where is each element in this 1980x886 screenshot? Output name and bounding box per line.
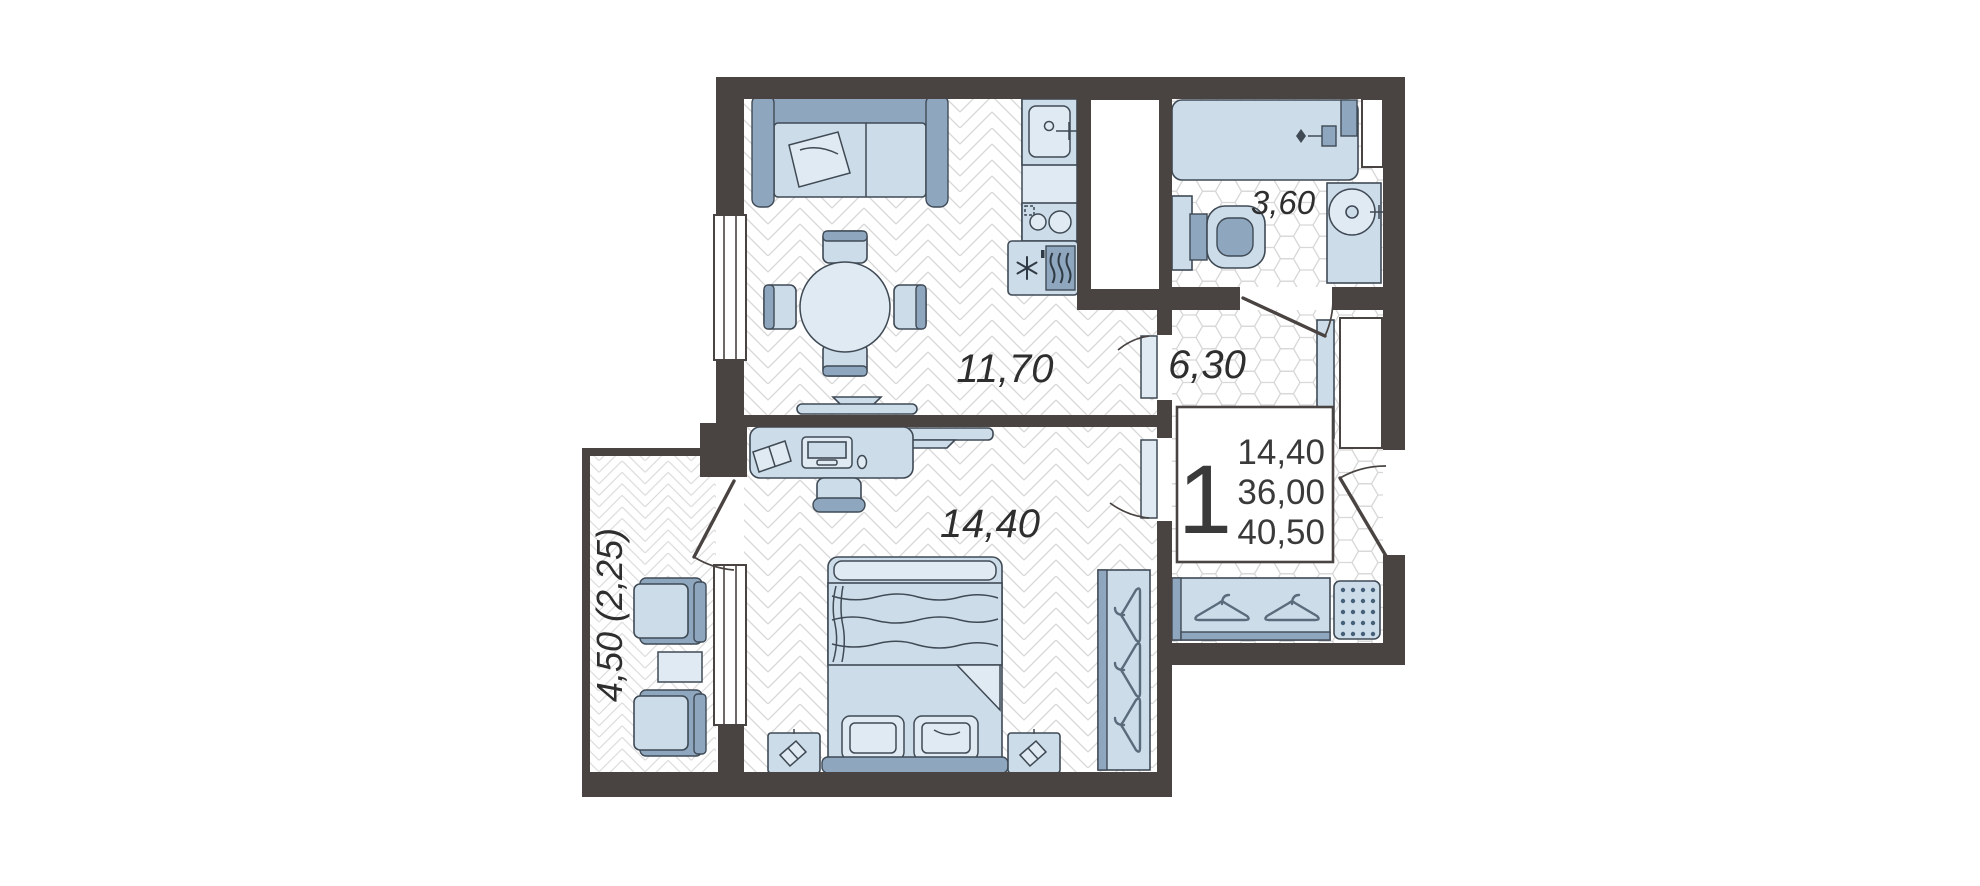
headboard	[822, 757, 1008, 773]
dining-chair-west	[764, 285, 796, 329]
label-bathroom: 3,60	[1251, 184, 1316, 221]
label-balcony: 4,50 (2,25)	[589, 528, 630, 702]
balcony-wall-top	[582, 448, 716, 456]
pillow-right	[914, 716, 978, 760]
bath-ledge	[1172, 196, 1192, 270]
bed-foot-board	[834, 561, 996, 580]
dining-table	[800, 262, 890, 352]
doormat	[1334, 581, 1380, 639]
mouse	[858, 456, 867, 469]
balcony-chair-top	[634, 578, 706, 644]
floor-plan: 11,70 6,30 3,60 14,40 4,50 (2,25) 1 14,4…	[0, 0, 1980, 886]
laptop	[802, 437, 852, 468]
rooms-count: 1	[1178, 445, 1232, 554]
dining-chair-north	[823, 231, 867, 263]
desk	[750, 427, 913, 478]
hall-wardrobe	[1172, 578, 1330, 640]
desk-chair	[813, 478, 865, 512]
window-bedroom	[714, 565, 746, 725]
floor-plan-page: 11,70 6,30 3,60 14,40 4,50 (2,25) 1 14,4…	[0, 0, 1980, 886]
label-kitchen-living: 11,70	[956, 347, 1053, 391]
total-area-value: 40,50	[1237, 513, 1325, 552]
window-living	[714, 215, 746, 360]
area-value: 36,00	[1237, 473, 1325, 512]
shower-mixer	[1341, 100, 1357, 136]
dining-chair-east	[894, 285, 926, 329]
bedroom-wardrobe	[1098, 570, 1150, 770]
fridge-oven-unit	[1008, 241, 1078, 295]
kitchen-cooktop	[1022, 203, 1077, 241]
balcony-chair-bottom	[634, 690, 706, 756]
nightstand-left	[768, 729, 820, 773]
label-bedroom: 14,40	[940, 502, 1040, 546]
bathtub	[1172, 100, 1358, 180]
wall-niche-top	[1362, 99, 1383, 167]
balcony-table	[658, 652, 702, 682]
sofa	[752, 95, 948, 207]
bed	[822, 557, 1008, 773]
vent-shaft	[1090, 99, 1160, 290]
summary-box: 1 14,40 36,00 40,50	[1177, 407, 1333, 562]
washbasin	[1327, 183, 1385, 283]
living-area-value: 14,40	[1237, 433, 1325, 472]
nightstand-right	[1008, 729, 1060, 773]
pillow-left	[842, 716, 904, 760]
wall-niche-entry	[1340, 318, 1382, 448]
kitchen-sink	[1022, 99, 1078, 165]
label-hallway: 6,30	[1168, 343, 1246, 387]
